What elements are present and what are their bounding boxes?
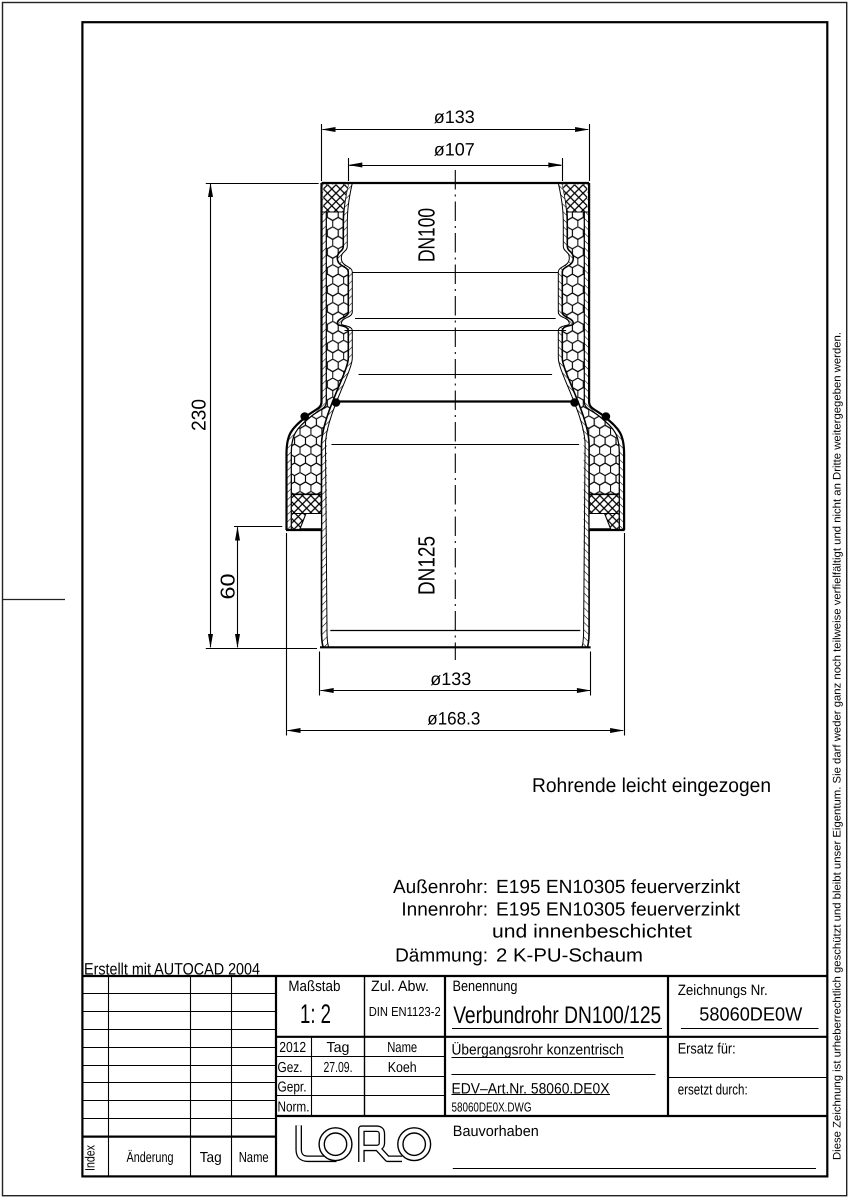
svg-text:Übergangsrohr konzentrisch: Übergangsrohr konzentrisch xyxy=(452,1042,624,1059)
svg-text:ersetzt durch:: ersetzt durch: xyxy=(678,1082,748,1099)
svg-text:Diese Zeichnung ist urheberrec: Diese Zeichnung ist urheberrechtlich ges… xyxy=(832,332,844,1160)
svg-text:Tag: Tag xyxy=(327,1040,350,1056)
svg-text:ø133: ø133 xyxy=(434,107,475,127)
svg-text:ø133: ø133 xyxy=(430,669,471,689)
svg-text:EDV–Art.Nr. 58060.DE0X: EDV–Art.Nr. 58060.DE0X xyxy=(452,1081,610,1098)
svg-text:E195 EN10305 feuerverzinkt: E195 EN10305 feuerverzinkt xyxy=(496,899,741,920)
svg-text:DN125: DN125 xyxy=(414,536,440,595)
svg-text:230: 230 xyxy=(189,399,211,431)
svg-text:Zeichnungs Nr.: Zeichnungs Nr. xyxy=(678,982,768,999)
svg-text:Name: Name xyxy=(387,1040,417,1056)
svg-text:Name: Name xyxy=(239,1150,269,1166)
svg-text:Bauvorhaben: Bauvorhaben xyxy=(453,1123,539,1140)
svg-text:ø107: ø107 xyxy=(434,140,475,160)
svg-text:Gepr.: Gepr. xyxy=(278,1080,307,1096)
svg-text:Index: Index xyxy=(83,1145,98,1171)
svg-text:ø168.3: ø168.3 xyxy=(427,709,480,729)
svg-text:E195 EN10305 feuerverzinkt: E195 EN10305 feuerverzinkt xyxy=(496,877,741,898)
svg-text:Zul. Abw.: Zul. Abw. xyxy=(371,978,429,995)
svg-text:60: 60 xyxy=(218,574,240,600)
svg-text:58060DE0W: 58060DE0W xyxy=(699,1005,802,1026)
svg-text:Dämmung:: Dämmung: xyxy=(395,946,488,967)
svg-text:Tag: Tag xyxy=(200,1150,222,1166)
svg-text:DIN EN1123-2: DIN EN1123-2 xyxy=(369,1004,441,1019)
svg-text:Verbundrohr DN100/125: Verbundrohr DN100/125 xyxy=(453,1002,661,1029)
svg-text:DN100: DN100 xyxy=(414,208,440,262)
svg-text:27.09.: 27.09. xyxy=(324,1060,353,1076)
svg-text:1: 2: 1: 2 xyxy=(300,999,331,1029)
svg-text:2 K-PU-Schaum: 2 K-PU-Schaum xyxy=(496,946,643,967)
svg-text:58060DE0X.DWG: 58060DE0X.DWG xyxy=(452,1100,532,1115)
svg-text:Benennung: Benennung xyxy=(453,978,518,995)
svg-text:Koeh: Koeh xyxy=(388,1060,417,1076)
svg-text:Änderung: Änderung xyxy=(127,1149,174,1166)
svg-text:Gez.: Gez. xyxy=(278,1060,303,1076)
svg-text:Außenrohr:: Außenrohr: xyxy=(393,877,488,898)
svg-text:Innenrohr:: Innenrohr: xyxy=(401,899,488,920)
svg-text:und innenbeschichtet: und innenbeschichtet xyxy=(492,922,693,943)
svg-text:Ersatz für:: Ersatz für: xyxy=(678,1041,736,1058)
svg-text:Rohrende leicht eingezogen: Rohrende leicht eingezogen xyxy=(532,775,771,797)
svg-text:Maßstab: Maßstab xyxy=(288,978,340,995)
svg-text:Norm.: Norm. xyxy=(278,1099,310,1115)
svg-text:2012: 2012 xyxy=(279,1040,306,1056)
